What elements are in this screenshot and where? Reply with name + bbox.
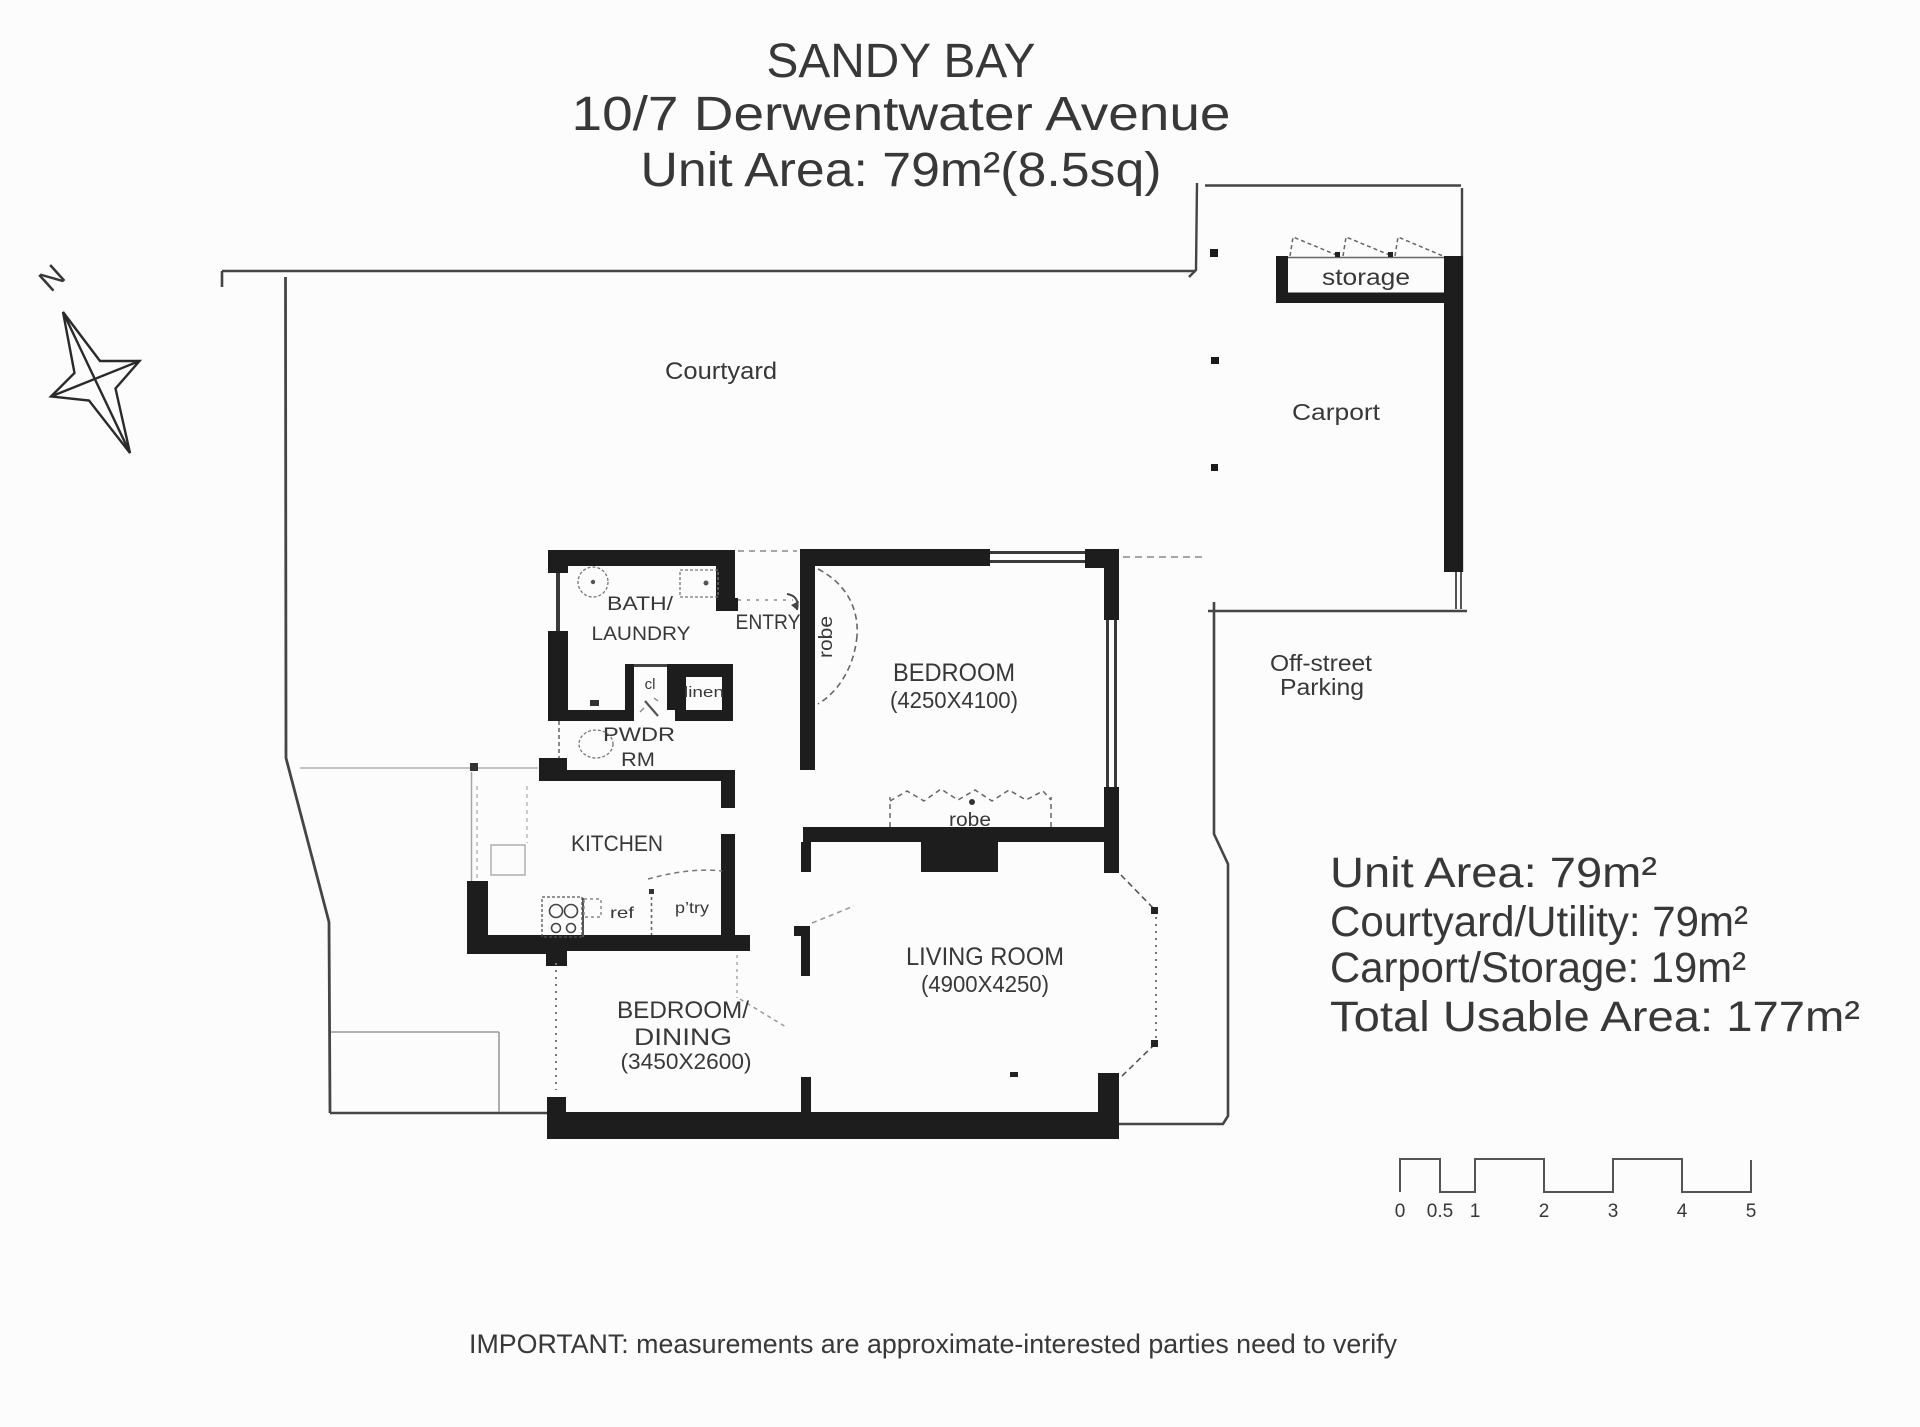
svg-text:(4250X4100): (4250X4100) (890, 687, 1018, 713)
svg-text:linen: linen (684, 684, 724, 701)
svg-text:4: 4 (1677, 1201, 1688, 1222)
svg-text:Courtyard/Utility: 79m²: Courtyard/Utility: 79m² (1330, 898, 1748, 946)
svg-text:3: 3 (1608, 1201, 1619, 1222)
svg-text:BEDROOM: BEDROOM (893, 659, 1015, 687)
svg-text:DINING: DINING (634, 1024, 732, 1051)
svg-text:0.5: 0.5 (1427, 1201, 1453, 1222)
svg-text:(3450X2600): (3450X2600) (621, 1049, 752, 1074)
svg-text:p’try: p’try (675, 900, 709, 917)
svg-text:robe: robe (949, 810, 991, 831)
svg-text:storage: storage (1322, 264, 1410, 290)
svg-text:2: 2 (1539, 1201, 1550, 1222)
svg-text:Unit Area: 79m²(8.5sq): Unit Area: 79m²(8.5sq) (641, 144, 1162, 197)
svg-text:LIVING ROOM: LIVING ROOM (906, 943, 1064, 971)
svg-text:(4900X4250): (4900X4250) (921, 971, 1049, 997)
svg-text:ref: ref (610, 905, 635, 922)
svg-text:Carport/Storage: 19m²: Carport/Storage: 19m² (1330, 944, 1746, 992)
svg-text:RM: RM (621, 750, 655, 771)
svg-text:KITCHEN: KITCHEN (571, 831, 663, 856)
svg-text:1: 1 (1470, 1201, 1481, 1222)
svg-text:0: 0 (1395, 1201, 1406, 1222)
svg-text:Carport: Carport (1292, 399, 1381, 425)
svg-text:cl: cl (645, 676, 656, 693)
svg-text:Parking: Parking (1280, 674, 1364, 700)
svg-text:PWDR: PWDR (603, 725, 675, 746)
svg-text:BATH/: BATH/ (607, 594, 674, 615)
svg-text:IMPORTANT: measurements are ap: IMPORTANT: measurements are approximate-… (469, 1329, 1397, 1359)
svg-text:BEDROOM/: BEDROOM/ (617, 997, 749, 1024)
svg-text:Courtyard: Courtyard (665, 358, 777, 385)
svg-text:5: 5 (1746, 1201, 1757, 1222)
svg-text:Unit Area: 79m²: Unit Area: 79m² (1330, 849, 1657, 897)
svg-text:10/7 Derwentwater Avenue: 10/7 Derwentwater Avenue (572, 88, 1231, 141)
svg-text:ENTRY: ENTRY (736, 611, 801, 634)
svg-text:Off-street: Off-street (1270, 650, 1373, 676)
svg-text:LAUNDRY: LAUNDRY (592, 624, 691, 645)
svg-text:Total Usable Area: 177m²: Total Usable Area: 177m² (1330, 993, 1860, 1041)
svg-text:robe: robe (816, 616, 837, 658)
svg-text:SANDY BAY: SANDY BAY (767, 35, 1036, 88)
